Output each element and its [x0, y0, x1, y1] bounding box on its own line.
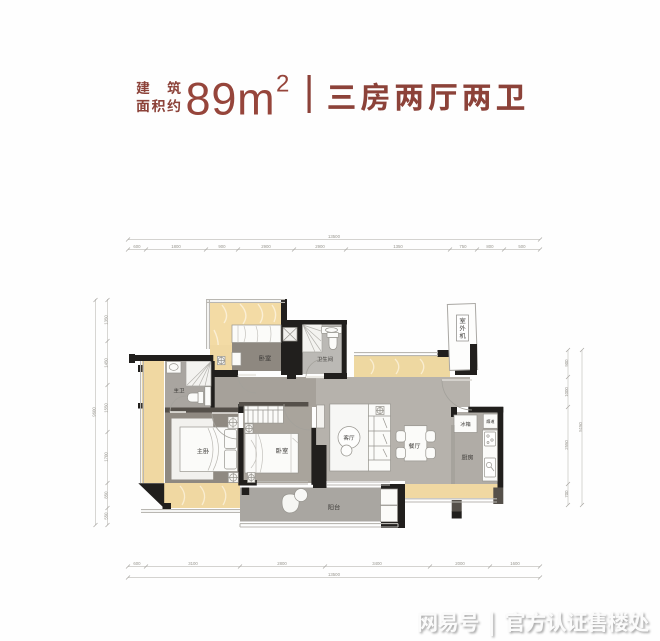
svg-text:1350: 1350: [104, 315, 109, 325]
svg-text:13500: 13500: [328, 234, 341, 239]
svg-text:89m: 89m: [186, 74, 276, 125]
svg-text:900: 900: [564, 359, 569, 367]
svg-text:13500: 13500: [328, 572, 341, 577]
svg-text:9600: 9600: [92, 407, 97, 417]
svg-text:1450: 1450: [104, 358, 109, 368]
svg-text:600: 600: [133, 244, 141, 249]
svg-text:750: 750: [459, 244, 467, 249]
svg-text:900: 900: [218, 244, 226, 249]
svg-text:2900: 2900: [315, 244, 325, 249]
svg-text:850: 850: [104, 491, 109, 499]
svg-text:1550: 1550: [104, 403, 109, 413]
svg-text:700: 700: [564, 490, 569, 498]
svg-text:600: 600: [133, 561, 141, 566]
svg-text:500: 500: [518, 244, 526, 249]
svg-text:2800: 2800: [277, 561, 287, 566]
svg-text:1600: 1600: [510, 561, 520, 566]
svg-text:1350: 1350: [393, 244, 403, 249]
svg-text:550: 550: [104, 512, 109, 520]
svg-text:2: 2: [276, 71, 289, 98]
svg-text:3400: 3400: [372, 561, 382, 566]
svg-text:1800: 1800: [171, 244, 181, 249]
svg-text:800: 800: [486, 244, 494, 249]
svg-text:2900: 2900: [261, 244, 271, 249]
svg-text:5150: 5150: [578, 422, 583, 432]
svg-text:1700: 1700: [104, 452, 109, 462]
svg-text:1000: 1000: [564, 387, 569, 397]
svg-text:2550: 2550: [564, 440, 569, 450]
svg-text:3100: 3100: [188, 561, 198, 566]
svg-text:2000: 2000: [455, 561, 465, 566]
